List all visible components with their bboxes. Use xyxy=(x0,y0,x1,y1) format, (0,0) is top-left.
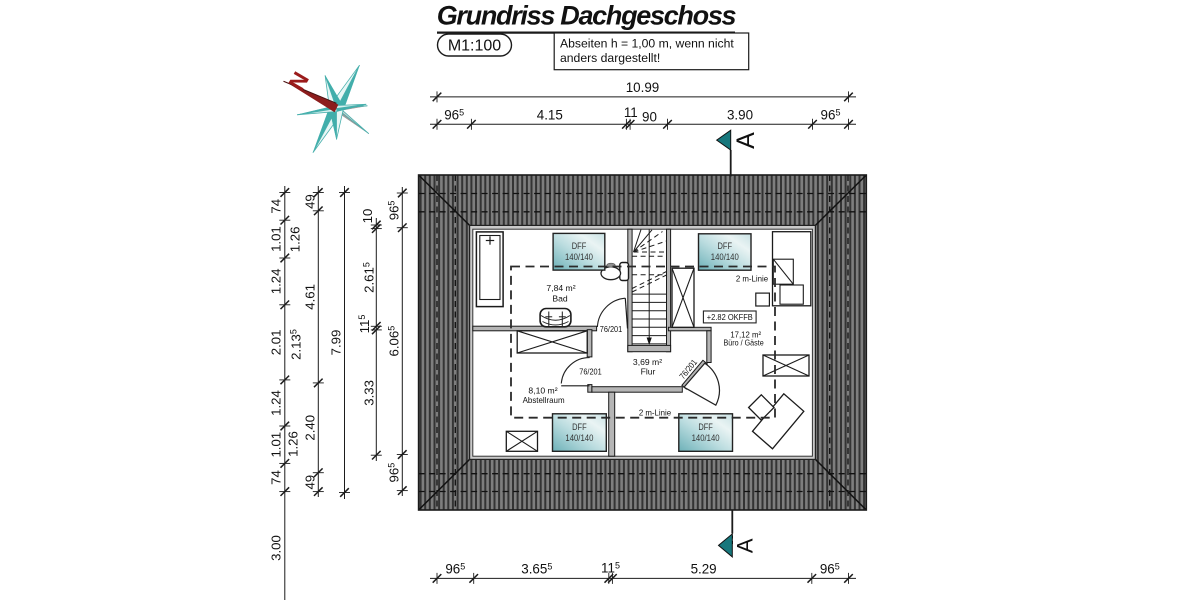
svg-text:7.99: 7.99 xyxy=(329,330,344,356)
svg-text:DFF: DFF xyxy=(718,241,733,251)
svg-text:140/140: 140/140 xyxy=(692,433,720,443)
svg-text:10.99: 10.99 xyxy=(626,80,660,95)
svg-text:74: 74 xyxy=(268,199,283,214)
svg-text:90: 90 xyxy=(642,109,657,124)
svg-text:1.01: 1.01 xyxy=(268,226,283,252)
svg-text:10: 10 xyxy=(360,209,375,224)
svg-text:anders dargestellt!: anders dargestellt! xyxy=(560,51,660,65)
svg-text:Flur: Flur xyxy=(641,367,656,377)
svg-text:1.24: 1.24 xyxy=(268,269,283,295)
svg-text:2 m-Linie: 2 m-Linie xyxy=(736,274,768,284)
svg-text:DFF: DFF xyxy=(572,241,587,251)
svg-text:74: 74 xyxy=(268,470,283,485)
svg-text:Abseiten h = 1,00 m, wenn nich: Abseiten h = 1,00 m, wenn nicht xyxy=(560,37,734,51)
svg-text:49: 49 xyxy=(302,475,317,490)
svg-text:Bad: Bad xyxy=(552,293,568,303)
svg-text:DFF: DFF xyxy=(572,422,587,432)
svg-text:3.00: 3.00 xyxy=(268,535,283,561)
svg-text:76/201: 76/201 xyxy=(579,367,602,377)
svg-text:49: 49 xyxy=(302,194,317,209)
svg-text:76/201: 76/201 xyxy=(600,324,623,334)
svg-text:M1:100: M1:100 xyxy=(448,38,501,55)
svg-text:3,69 m²: 3,69 m² xyxy=(633,357,662,367)
svg-text:5.29: 5.29 xyxy=(691,561,717,576)
svg-text:1.24: 1.24 xyxy=(268,390,283,416)
svg-text:3.33: 3.33 xyxy=(361,380,376,406)
svg-text:Grundriss Dachgeschoss: Grundriss Dachgeschoss xyxy=(437,1,737,31)
svg-text:4.61: 4.61 xyxy=(302,284,317,310)
svg-text:140/140: 140/140 xyxy=(565,433,593,443)
svg-text:2.40: 2.40 xyxy=(302,415,317,441)
svg-text:4.15: 4.15 xyxy=(537,107,563,122)
svg-text:3.90: 3.90 xyxy=(727,107,753,122)
svg-text:A: A xyxy=(732,132,760,149)
svg-text:+2.82 OKFFB: +2.82 OKFFB xyxy=(707,312,753,322)
svg-text:140/140: 140/140 xyxy=(565,252,593,262)
svg-text:8,10 m²: 8,10 m² xyxy=(528,385,557,395)
svg-text:140/140: 140/140 xyxy=(711,252,739,262)
svg-text:2.01: 2.01 xyxy=(268,330,283,356)
svg-text:1.26: 1.26 xyxy=(286,431,301,457)
svg-text:Büro / Gäste: Büro / Gäste xyxy=(723,338,763,348)
svg-text:DFF: DFF xyxy=(698,422,713,432)
svg-text:A: A xyxy=(733,538,758,553)
svg-text:2 m-Linie: 2 m-Linie xyxy=(639,407,671,417)
svg-text:7,84 m²: 7,84 m² xyxy=(546,283,575,293)
svg-text:1.26: 1.26 xyxy=(288,227,303,253)
svg-text:1.01: 1.01 xyxy=(268,432,283,458)
svg-text:11: 11 xyxy=(624,105,638,120)
svg-text:Abstellraum: Abstellraum xyxy=(523,395,565,405)
